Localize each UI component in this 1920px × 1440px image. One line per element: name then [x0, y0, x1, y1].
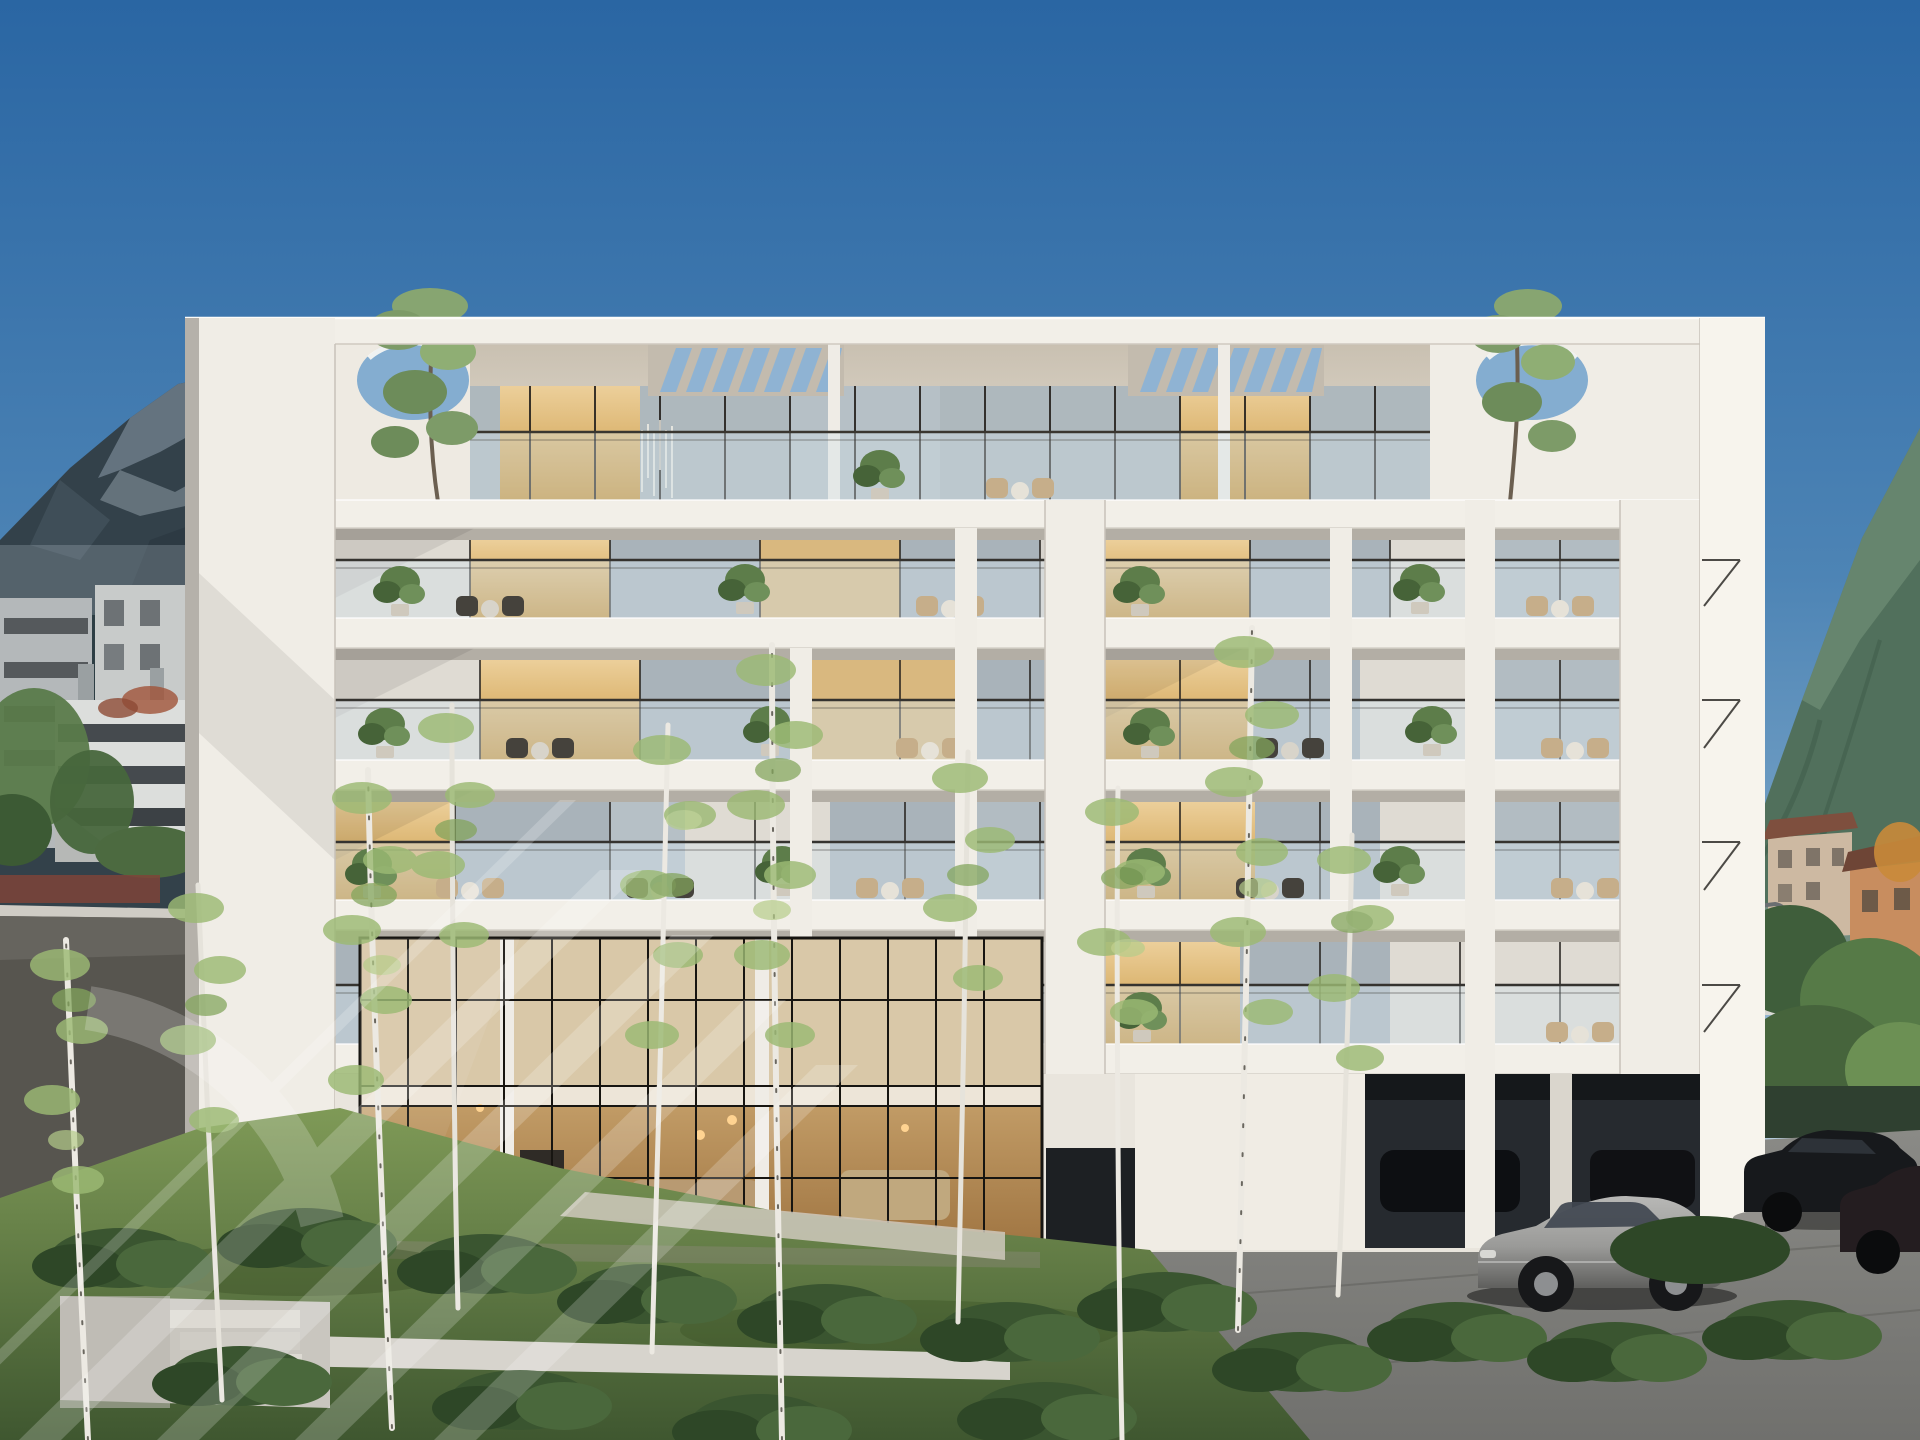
render-canvas [0, 0, 1920, 1440]
roof-fascia [185, 318, 1765, 344]
floor-4 [335, 648, 1620, 760]
side-wall [1700, 318, 1765, 1252]
garage-opening [1046, 1148, 1135, 1252]
floor-5 [335, 528, 1620, 618]
architectural-render [0, 0, 1920, 1440]
